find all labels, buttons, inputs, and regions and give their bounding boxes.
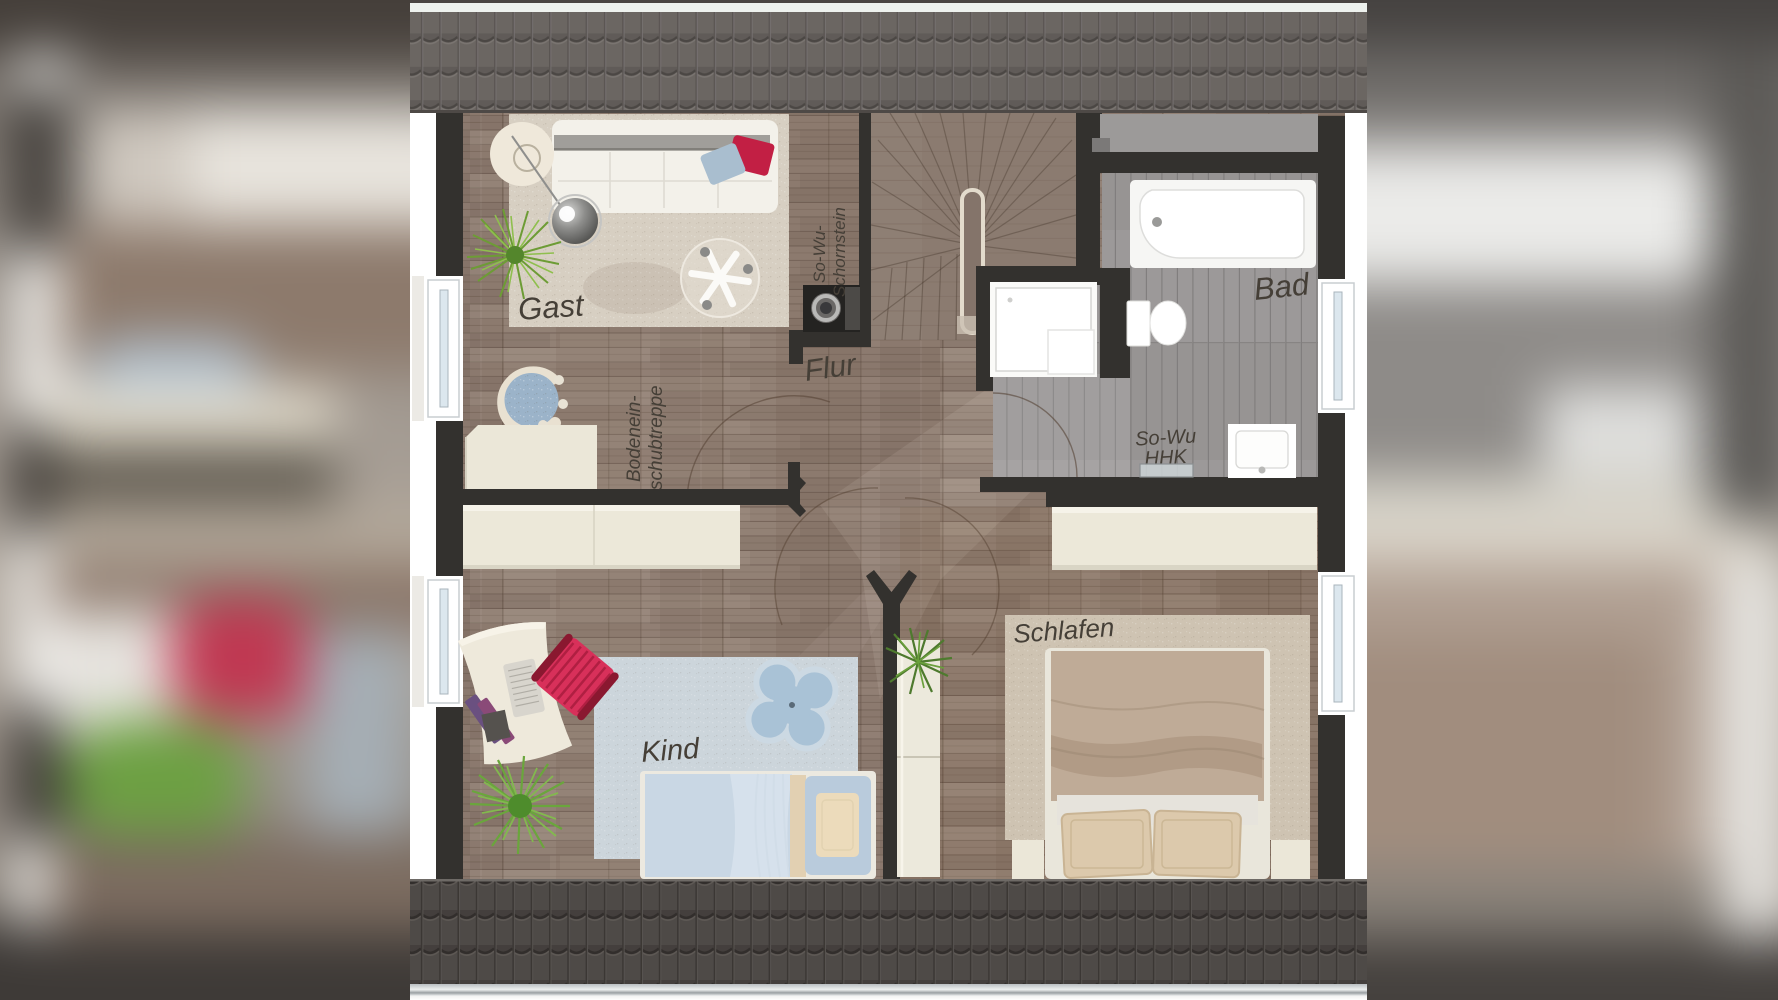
svg-text:So-Wu-: So-Wu- bbox=[810, 225, 829, 283]
svg-text:Schornstein: Schornstein bbox=[830, 207, 849, 297]
svg-text:Kind: Kind bbox=[640, 733, 701, 769]
svg-text:Bodenein-: Bodenein- bbox=[624, 395, 645, 482]
svg-text:Bad: Bad bbox=[1252, 266, 1312, 307]
svg-text:Gast: Gast bbox=[517, 287, 586, 327]
svg-text:schubtreppe: schubtreppe bbox=[646, 385, 667, 490]
